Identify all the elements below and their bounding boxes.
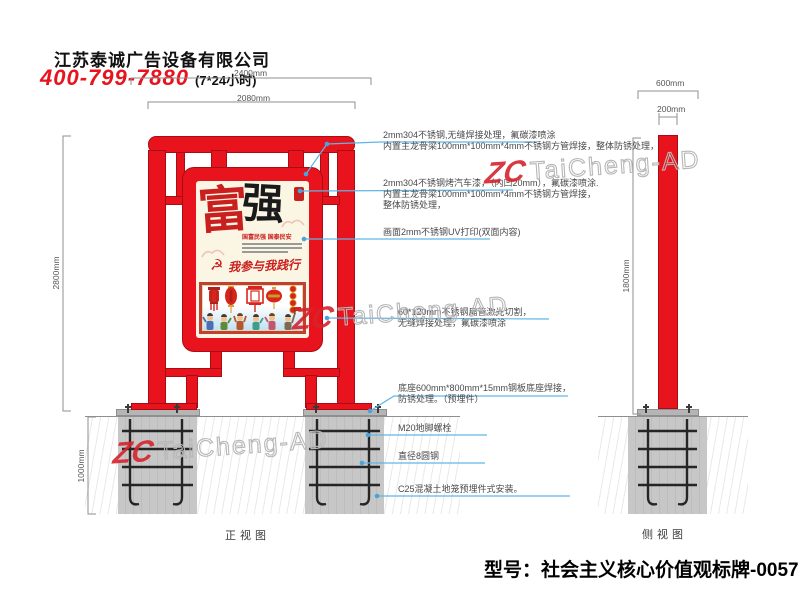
annotation-flat-tube: 60*120mm不锈钢扁管激光切割，无缝焊接处理，氟碳漆喷涂	[398, 307, 532, 329]
foot-bar-left	[131, 403, 197, 410]
dim-total-width: 2400mm	[234, 68, 267, 78]
annotation-frame-material: 2mm304不锈钢,无缝焊接处理，氟碳漆喷涂内置主龙骨梁100mm*100mm*…	[383, 130, 659, 152]
square-palace-lantern	[247, 286, 263, 312]
rebar-cage-right	[305, 417, 384, 514]
poster-illustration	[199, 282, 306, 334]
side-view-label: 侧视图	[642, 526, 687, 542]
rebar-cage-side	[628, 417, 707, 514]
annotation-round-steel: 直径8圆钢	[398, 451, 439, 462]
poster-slogan: 我参与我践行	[228, 256, 301, 276]
front-view-label: 正视图	[225, 527, 270, 543]
annotation-base-plate: 底座600mm*800mm*15mm钢板底座焊接，防锈处理。（预埋件）	[398, 383, 571, 405]
annotation-anchor-bolt: M20地脚螺栓	[398, 423, 452, 434]
palace-lantern	[208, 287, 220, 311]
dim-pole-width: 200mm	[657, 104, 685, 114]
poster-fine-print	[242, 247, 302, 249]
poster-subtitle: 国富民强 国泰民安	[242, 232, 292, 241]
dim-base-width: 600mm	[656, 78, 684, 88]
annotation-concrete: C25混凝土地笼预埋件式安装。	[398, 484, 523, 495]
party-emblem-icon: ☭	[210, 258, 223, 273]
poster-seal	[294, 187, 304, 201]
poster: 富 强 国富民强 国泰民安 ☭ 我参与我践行	[196, 181, 309, 338]
frame-post-outer-left	[148, 150, 166, 408]
dim-frame-width: 2080mm	[237, 93, 270, 103]
phone-row: 400-799-7880(7*24小时)	[40, 65, 256, 91]
rebar-cage-left	[118, 417, 197, 514]
poster-character-right: 强	[241, 182, 285, 226]
round-lantern	[266, 287, 282, 309]
model-number: 型号：社会主义核心价值观标牌-0057	[484, 555, 799, 582]
phone-number: 400-799-7880	[40, 65, 189, 90]
poster-fine-print	[242, 243, 302, 245]
side-view-pole	[658, 135, 678, 409]
annotation-panel-material: 2mm304不锈钢烤汽车漆，（内凹20mm），氟碳漆喷涂.内置主龙骨梁100mm…	[383, 178, 599, 211]
dim-pole-height: 1800mm	[621, 246, 631, 306]
anchor-bolt	[645, 404, 647, 413]
annotation-print-surface: 画面2mm不锈钢UV打印(双面内容)	[383, 227, 521, 238]
anchor-bolt	[315, 404, 317, 413]
lanterns-and-people-illustration	[202, 285, 303, 331]
poster-fine-print	[242, 251, 288, 253]
celebrating-people	[203, 307, 301, 330]
dim-frame-height: 2800mm	[51, 243, 61, 303]
technical-drawing-page: { "header": { "company": "江苏泰诚广告设备有限公司",…	[0, 0, 800, 600]
anchor-bolt	[127, 404, 129, 413]
frame-top-bar	[148, 136, 355, 153]
anchor-bolt	[688, 404, 690, 413]
cloud-decoration	[280, 217, 306, 231]
anchor-bolt	[377, 404, 379, 413]
anchor-bolt	[176, 404, 178, 413]
dim-foundation-depth: 1000mm	[76, 436, 86, 496]
oval-lantern	[225, 286, 237, 313]
sign-panel: 富 强 国富民强 国泰民安 ☭ 我参与我践行	[182, 167, 323, 352]
